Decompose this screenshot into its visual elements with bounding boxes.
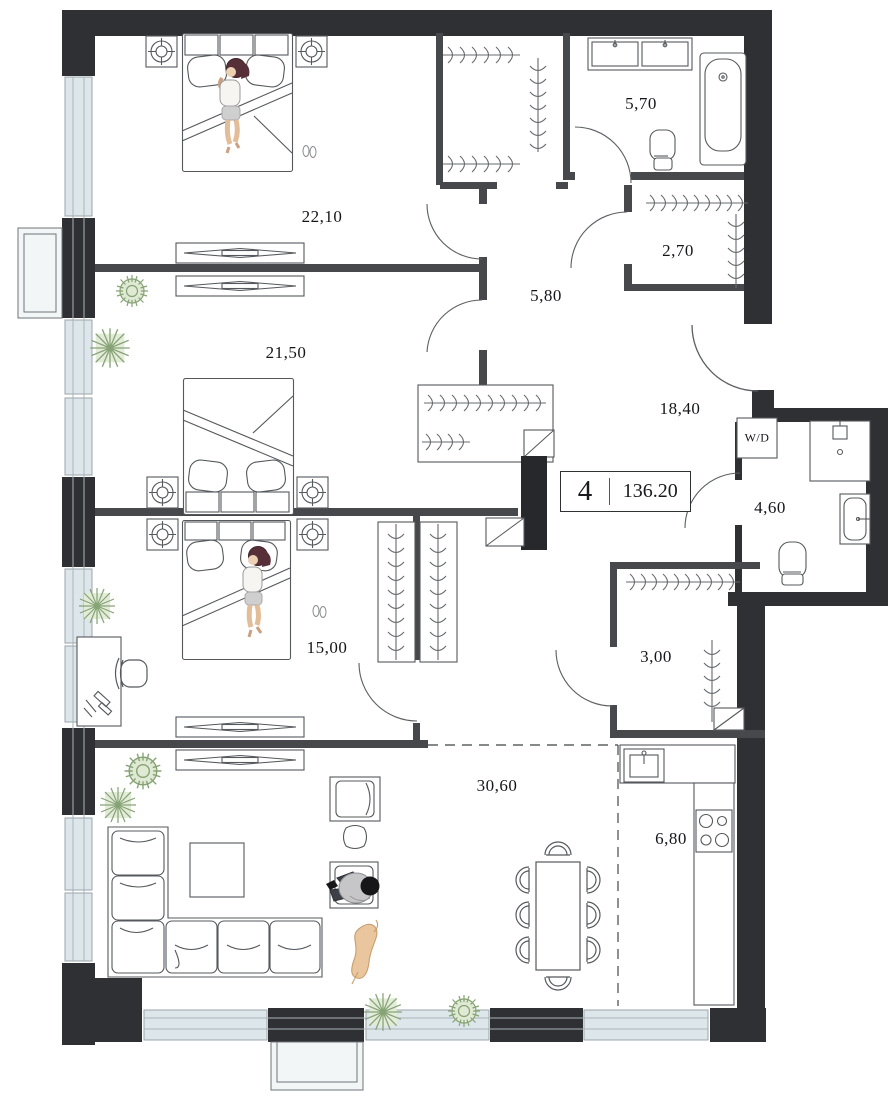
floor-plan: 22,10 5,70 2,70 5,80 21,50 18,40 4,60 15… xyxy=(0,0,895,1115)
kitchen xyxy=(620,745,735,1005)
bathtub xyxy=(700,53,746,165)
shower xyxy=(810,421,870,481)
room-label-dressing-middle: 3,00 xyxy=(640,647,672,667)
coffee-table xyxy=(190,843,244,897)
room-label-bathroom-top: 5,70 xyxy=(625,94,657,114)
dog xyxy=(352,920,378,984)
balcony-left xyxy=(18,228,62,318)
room-label-kitchen: 6,80 xyxy=(655,829,687,849)
unit-rooms-count: 4 xyxy=(561,477,609,506)
room-label-bedroom-lower: 15,00 xyxy=(307,638,348,658)
unit-total-area: 136.20 xyxy=(610,480,690,503)
floor-plan-drawing xyxy=(0,0,895,1115)
armchair-top xyxy=(330,777,380,821)
room-label-living-room: 30,60 xyxy=(477,776,518,796)
sink-side xyxy=(840,494,870,544)
room-label-hallway-entry: 18,40 xyxy=(660,399,701,419)
unit-info-badge: 4 136.20 xyxy=(560,471,691,512)
room-label-hallway-inner: 5,80 xyxy=(530,286,562,306)
room-label-dressing-top: 2,70 xyxy=(662,241,694,261)
stove xyxy=(696,810,732,852)
toilet-side xyxy=(779,542,806,585)
bathroom-top-fixtures xyxy=(588,38,746,170)
dining-set xyxy=(516,842,600,990)
bed-middle xyxy=(183,379,294,515)
washer-dryer-label: W/D xyxy=(745,431,770,446)
toilet-top xyxy=(650,130,675,170)
balcony-bottom xyxy=(271,1042,363,1090)
window-strips-bottom xyxy=(144,1010,708,1040)
bed-lower xyxy=(182,521,291,660)
desk xyxy=(77,637,121,726)
pouf xyxy=(344,826,367,849)
room-label-bedroom-top: 22,10 xyxy=(302,207,343,227)
walk-in-closet xyxy=(443,47,546,172)
room-label-bathroom-side: 4,60 xyxy=(754,498,786,518)
zone-boundary xyxy=(428,745,618,1006)
room-label-bedroom-middle: 21,50 xyxy=(266,343,307,363)
